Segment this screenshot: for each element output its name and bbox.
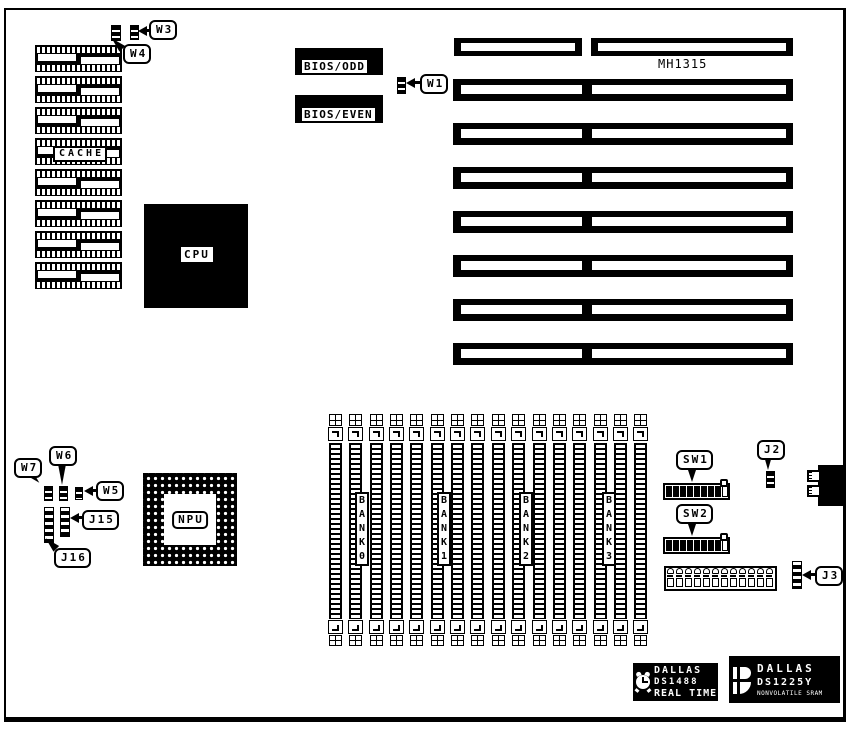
- socket-latch: [532, 427, 547, 441]
- simm-socket: [551, 414, 568, 646]
- latch-hook: [454, 625, 461, 631]
- socket-latch: [633, 427, 648, 441]
- socket-latch: [470, 427, 485, 441]
- keyboard-connector-port-1: [807, 470, 821, 482]
- npu-label: NPU: [172, 511, 208, 529]
- power-connector: [664, 566, 777, 591]
- switch-segment-on: [680, 486, 686, 497]
- isa-slot-segment: [454, 38, 582, 56]
- latch-hook: [373, 431, 380, 437]
- socket-tab: [512, 635, 525, 646]
- sw2-dip-switch: [663, 537, 730, 554]
- power-pin: [694, 568, 701, 574]
- chip-pin-row: [36, 171, 121, 177]
- slot-opening: [461, 217, 582, 226]
- power-hole: [703, 578, 710, 587]
- npu-label-text: NPU: [178, 513, 204, 526]
- w5-jumper: [75, 487, 83, 500]
- slot-opening: [461, 129, 582, 138]
- cache-chip-row: [35, 107, 122, 134]
- chip-pin-row: [36, 282, 121, 288]
- switch-segment-on: [694, 540, 700, 551]
- socket-latch: [491, 620, 506, 634]
- power-hole: [748, 578, 755, 587]
- power-pin: [703, 568, 710, 574]
- latch-hook: [352, 625, 359, 631]
- clock-foot: [647, 688, 652, 693]
- latch-hook: [515, 431, 522, 437]
- cpu-label-text: CPU: [184, 248, 210, 261]
- slot-opening: [461, 173, 582, 182]
- bank2-text: BANK2: [523, 495, 529, 562]
- slot-opening: [461, 305, 582, 314]
- w1-jumper: [397, 77, 406, 94]
- switch-segment-open: [722, 540, 728, 551]
- switch-segment-on: [687, 486, 693, 497]
- simm-socket: [327, 414, 344, 646]
- chip-pin-row: [36, 264, 121, 270]
- slot-opening: [592, 305, 786, 314]
- chip-pin-row: [36, 127, 121, 133]
- rtc-part: DS1488: [654, 677, 717, 687]
- dallas-nvram-logo: DALLAS DS1225Y NONVOLATILE SRAM: [729, 656, 840, 703]
- w4-callout: W4: [123, 44, 151, 64]
- socket-contact-strip: [553, 443, 566, 619]
- switch-segment-open: [722, 486, 728, 497]
- chip-pin-row: [36, 47, 121, 53]
- latch-hook: [474, 431, 481, 437]
- isa-slot: [453, 123, 793, 145]
- socket-contact-strip: [471, 443, 484, 619]
- chip-body: [81, 243, 119, 250]
- socket-tab: [573, 414, 586, 426]
- j16-callout-label: J16: [61, 551, 87, 564]
- slot-opening: [592, 85, 786, 94]
- switch-segment-on: [680, 540, 686, 551]
- socket-latch: [348, 620, 363, 634]
- socket-latch: [389, 427, 404, 441]
- board-model-text: MH1315: [658, 57, 707, 71]
- chip-pin-row: [36, 109, 121, 115]
- power-pin: [685, 568, 692, 574]
- bank3-text: BANK3: [606, 495, 612, 562]
- socket-tab: [594, 635, 607, 646]
- latch-hook: [332, 431, 339, 437]
- power-hole: [757, 578, 764, 587]
- power-pin: [757, 568, 764, 574]
- npu-socket: NPU: [143, 473, 237, 566]
- chip-pin-row: [36, 220, 121, 226]
- w7-jumper: [44, 486, 53, 501]
- latch-hook: [617, 625, 624, 631]
- cache-chip-row: [35, 76, 122, 103]
- chip-body: [38, 240, 76, 247]
- latch-hook: [373, 625, 380, 631]
- keyboard-connector: [818, 465, 846, 506]
- chip-body: [38, 85, 76, 92]
- socket-latch: [593, 427, 608, 441]
- bios-odd-text: BIOS/ODD: [304, 60, 365, 73]
- socket-latch: [409, 620, 424, 634]
- socket-contact-strip: [492, 443, 505, 619]
- simm-socket: [408, 414, 425, 646]
- switch-segment-on: [666, 486, 672, 497]
- slot-opening: [592, 217, 786, 226]
- cache-label: CACHE: [53, 146, 107, 162]
- power-hole: [676, 578, 683, 587]
- power-pin: [676, 568, 683, 574]
- socket-contact-strip: [533, 443, 546, 619]
- isa-slot: [453, 299, 793, 321]
- socket-latch: [633, 620, 648, 634]
- w4-callout-label: W4: [130, 47, 147, 60]
- power-pin: [712, 568, 719, 574]
- clock-foot: [635, 688, 640, 693]
- isa-slot-segment: [591, 38, 793, 56]
- j2-callout-label: J2: [764, 443, 781, 456]
- socket-latch: [511, 427, 526, 441]
- socket-latch: [369, 620, 384, 634]
- nvram-part: DS1225Y: [757, 677, 823, 688]
- slot-opening: [592, 129, 786, 138]
- sw1-callout: SW1: [676, 450, 713, 470]
- latch-hook: [536, 431, 543, 437]
- latch-hook: [515, 625, 522, 631]
- latch-hook: [495, 625, 502, 631]
- bios-odd-label: BIOS/ODD: [301, 59, 368, 74]
- w7-callout-label: W7: [21, 461, 38, 474]
- socket-latch: [450, 427, 465, 441]
- chip-body: [38, 116, 76, 123]
- alarm-clock-icon: [635, 672, 652, 693]
- cache-chip-row: [35, 200, 122, 227]
- chip-pin-row: [36, 202, 121, 208]
- isa-slot: [453, 211, 793, 233]
- j3-callout: J3: [815, 566, 843, 586]
- chip-pin-row: [36, 78, 121, 84]
- latch-hook: [576, 625, 583, 631]
- j15-header: [60, 507, 70, 537]
- socket-latch: [552, 427, 567, 441]
- socket-latch: [328, 427, 343, 441]
- socket-latch: [613, 620, 628, 634]
- slot-opening: [598, 43, 786, 51]
- switch-notch: [720, 479, 728, 487]
- power-pin: [667, 568, 674, 574]
- power-pin: [721, 568, 728, 574]
- socket-latch: [572, 620, 587, 634]
- slot-opening: [592, 173, 786, 182]
- chip-body: [81, 57, 119, 64]
- clock-face: [636, 675, 650, 689]
- simm-socket: [469, 414, 486, 646]
- chip-body: [81, 119, 119, 126]
- dallas-d-icon: [733, 665, 753, 695]
- bios-even-text: BIOS/EVEN: [304, 108, 373, 121]
- sw2-callout: SW2: [676, 504, 713, 524]
- socket-tab: [431, 414, 444, 426]
- switch-segment-on: [666, 540, 672, 551]
- switch-segment-on: [673, 540, 679, 551]
- socket-latch: [409, 427, 424, 441]
- bios-odd-chip: BIOS/ODD: [295, 48, 383, 75]
- latch-hook: [454, 431, 461, 437]
- switch-segment-on: [715, 486, 721, 497]
- socket-tab: [431, 635, 444, 646]
- latch-hook: [556, 625, 563, 631]
- bank2-label: BANK2: [519, 492, 533, 566]
- connector-teeth: [809, 487, 812, 495]
- d-icon-top: [733, 667, 751, 679]
- socket-tab: [471, 635, 484, 646]
- latch-hook: [434, 625, 441, 631]
- dallas-rtc-logo: DALLAS DS1488 REAL TIME: [633, 663, 718, 701]
- chip-pin-row: [36, 96, 121, 102]
- latch-hook: [413, 625, 420, 631]
- socket-latch: [348, 427, 363, 441]
- socket-contact-strip: [573, 443, 586, 619]
- chip-body: [38, 54, 76, 61]
- simm-socket: [571, 414, 588, 646]
- cache-label-text: CACHE: [59, 148, 104, 159]
- power-pin: [739, 568, 746, 574]
- switch-segment-on: [715, 540, 721, 551]
- power-hole: [739, 578, 746, 587]
- simm-socket: [490, 414, 507, 646]
- slot-opening: [461, 349, 582, 358]
- latch-hook: [434, 431, 441, 437]
- simm-socket: [531, 414, 548, 646]
- socket-latch: [470, 620, 485, 634]
- socket-tab: [533, 635, 546, 646]
- chip-body: [38, 271, 76, 278]
- socket-tab: [471, 414, 484, 426]
- slot-opening: [592, 261, 786, 270]
- bank1-text: BANK1: [441, 495, 447, 562]
- latch-hook: [474, 625, 481, 631]
- socket-contact-strip: [451, 443, 464, 619]
- latch-hook: [495, 431, 502, 437]
- socket-latch: [593, 620, 608, 634]
- socket-tab: [553, 414, 566, 426]
- socket-tab: [573, 635, 586, 646]
- chip-pin-row: [36, 65, 121, 71]
- chip-body: [81, 212, 119, 219]
- socket-tab: [512, 414, 525, 426]
- socket-latch: [552, 620, 567, 634]
- isa-slot: [453, 255, 793, 277]
- socket-tab: [349, 635, 362, 646]
- w6-callout-pointer: [58, 464, 66, 485]
- power-hole: [721, 578, 728, 587]
- latch-hook: [413, 431, 420, 437]
- nvram-tagline: NONVOLATILE SRAM: [757, 690, 823, 697]
- power-hole: [685, 578, 692, 587]
- w5-callout-label: W5: [103, 484, 120, 497]
- motherboard-diagram: W3 W4 CACHE BIOS/ODD BIOS/EVEN W1 MH1315…: [0, 0, 851, 729]
- chip-body: [81, 274, 119, 281]
- socket-latch: [389, 620, 404, 634]
- socket-contact-strip: [329, 443, 342, 619]
- socket-contact-strip: [634, 443, 647, 619]
- rtc-brand: DALLAS: [654, 665, 717, 676]
- power-hole: [766, 578, 773, 587]
- socket-latch: [613, 427, 628, 441]
- power-pin: [730, 568, 737, 574]
- cpu-label: CPU: [181, 247, 213, 262]
- cache-chip-row: [35, 231, 122, 258]
- isa-slot: [453, 343, 793, 365]
- slot-opening: [461, 261, 582, 270]
- rtc-tagline: REAL TIME: [654, 688, 717, 699]
- w1-callout: W1: [420, 74, 448, 94]
- bank0-label: BANK0: [355, 492, 369, 566]
- socket-tab: [634, 414, 647, 426]
- switch-segment-on: [701, 540, 707, 551]
- sw1-callout-label: SW1: [683, 453, 709, 466]
- slot-opening: [461, 43, 575, 51]
- slot-opening: [461, 85, 582, 94]
- bank3-label: BANK3: [602, 492, 616, 566]
- chip-pin-row: [36, 251, 121, 257]
- simm-socket: [368, 414, 385, 646]
- socket-tab: [533, 414, 546, 426]
- chip-body: [38, 209, 76, 216]
- chip-pin-row: [36, 189, 121, 195]
- switch-segment-on: [687, 540, 693, 551]
- chip-body: [81, 181, 119, 188]
- latch-hook: [637, 625, 644, 631]
- w5-callout: W5: [96, 481, 124, 501]
- chip-body: [81, 88, 119, 95]
- cpu-chip: CPU: [144, 204, 248, 308]
- d-icon-slit: [737, 667, 740, 694]
- switch-segment-on: [701, 486, 707, 497]
- socket-tab: [594, 414, 607, 426]
- bios-even-label: BIOS/EVEN: [301, 107, 376, 122]
- latch-hook: [637, 431, 644, 437]
- socket-latch: [369, 427, 384, 441]
- latch-hook: [556, 431, 563, 437]
- simm-socket: [388, 414, 405, 646]
- socket-tab: [349, 414, 362, 426]
- socket-tab: [451, 414, 464, 426]
- socket-latch: [532, 620, 547, 634]
- power-hole: [667, 578, 674, 587]
- socket-latch: [430, 620, 445, 634]
- switch-segment-on: [673, 486, 679, 497]
- power-pin: [748, 568, 755, 574]
- switch-segment-on: [708, 540, 714, 551]
- socket-tab: [370, 635, 383, 646]
- latch-hook: [597, 625, 604, 631]
- nvram-brand: DALLAS: [757, 662, 823, 675]
- sw1-dip-switch: [663, 483, 730, 500]
- switch-segment-on: [708, 486, 714, 497]
- w6-jumper: [59, 486, 68, 501]
- j15-callout: J15: [82, 510, 119, 530]
- socket-tab: [390, 635, 403, 646]
- switch-notch: [720, 533, 728, 541]
- socket-tab: [614, 414, 627, 426]
- latch-hook: [393, 625, 400, 631]
- j15-callout-label: J15: [89, 513, 115, 526]
- isa-slot-area: [454, 38, 794, 368]
- j2-callout: J2: [757, 440, 785, 460]
- w3-callout-label: W3: [156, 23, 173, 36]
- simm-socket: [632, 414, 649, 646]
- socket-tab: [410, 414, 423, 426]
- cache-chip-row: [35, 169, 122, 196]
- cache-chip-array: [35, 45, 122, 292]
- connector-teeth: [809, 472, 812, 480]
- socket-latch: [572, 427, 587, 441]
- socket-latch: [430, 427, 445, 441]
- cache-chip-row: [35, 262, 122, 289]
- latch-hook: [617, 431, 624, 437]
- simm-socket: [449, 414, 466, 646]
- power-pin: [766, 568, 773, 574]
- w6-callout-label: W6: [56, 449, 73, 462]
- chip-body: [38, 178, 76, 185]
- socket-contact-strip: [370, 443, 383, 619]
- socket-tab: [451, 635, 464, 646]
- socket-tab: [410, 635, 423, 646]
- socket-contact-strip: [390, 443, 403, 619]
- isa-slot: [453, 167, 793, 189]
- power-key-line: [667, 575, 773, 577]
- socket-latch: [450, 620, 465, 634]
- latch-hook: [393, 431, 400, 437]
- j3-header: [792, 561, 802, 589]
- bank1-label: BANK1: [437, 492, 451, 566]
- socket-latch: [491, 427, 506, 441]
- j3-callout-label: J3: [822, 569, 839, 582]
- w6-callout: W6: [49, 446, 77, 466]
- j2-jumper: [766, 471, 775, 488]
- socket-tab: [329, 635, 342, 646]
- socket-latch: [511, 620, 526, 634]
- w7-callout: W7: [14, 458, 42, 478]
- socket-tab: [329, 414, 342, 426]
- latch-hook: [352, 431, 359, 437]
- board-model-label: MH1315: [658, 57, 707, 71]
- w3-callout: W3: [149, 20, 177, 40]
- d-icon-bottom: [733, 682, 751, 694]
- socket-tab: [492, 635, 505, 646]
- socket-tab: [390, 414, 403, 426]
- bank0-text: BANK0: [359, 495, 365, 562]
- latch-hook: [597, 431, 604, 437]
- chip-pin-row: [36, 233, 121, 239]
- clock-hand: [643, 681, 648, 683]
- switch-segment-on: [694, 486, 700, 497]
- w1-callout-label: W1: [427, 77, 444, 90]
- latch-hook: [536, 625, 543, 631]
- sw2-callout-label: SW2: [683, 507, 709, 520]
- bios-even-chip: BIOS/EVEN: [295, 95, 383, 123]
- socket-tab: [492, 414, 505, 426]
- slot-opening: [592, 349, 786, 358]
- isa-slot: [453, 79, 793, 101]
- socket-tab: [553, 635, 566, 646]
- socket-tab: [634, 635, 647, 646]
- latch-hook: [576, 431, 583, 437]
- socket-tab: [614, 635, 627, 646]
- power-hole: [730, 578, 737, 587]
- socket-contact-strip: [410, 443, 423, 619]
- power-hole: [712, 578, 719, 587]
